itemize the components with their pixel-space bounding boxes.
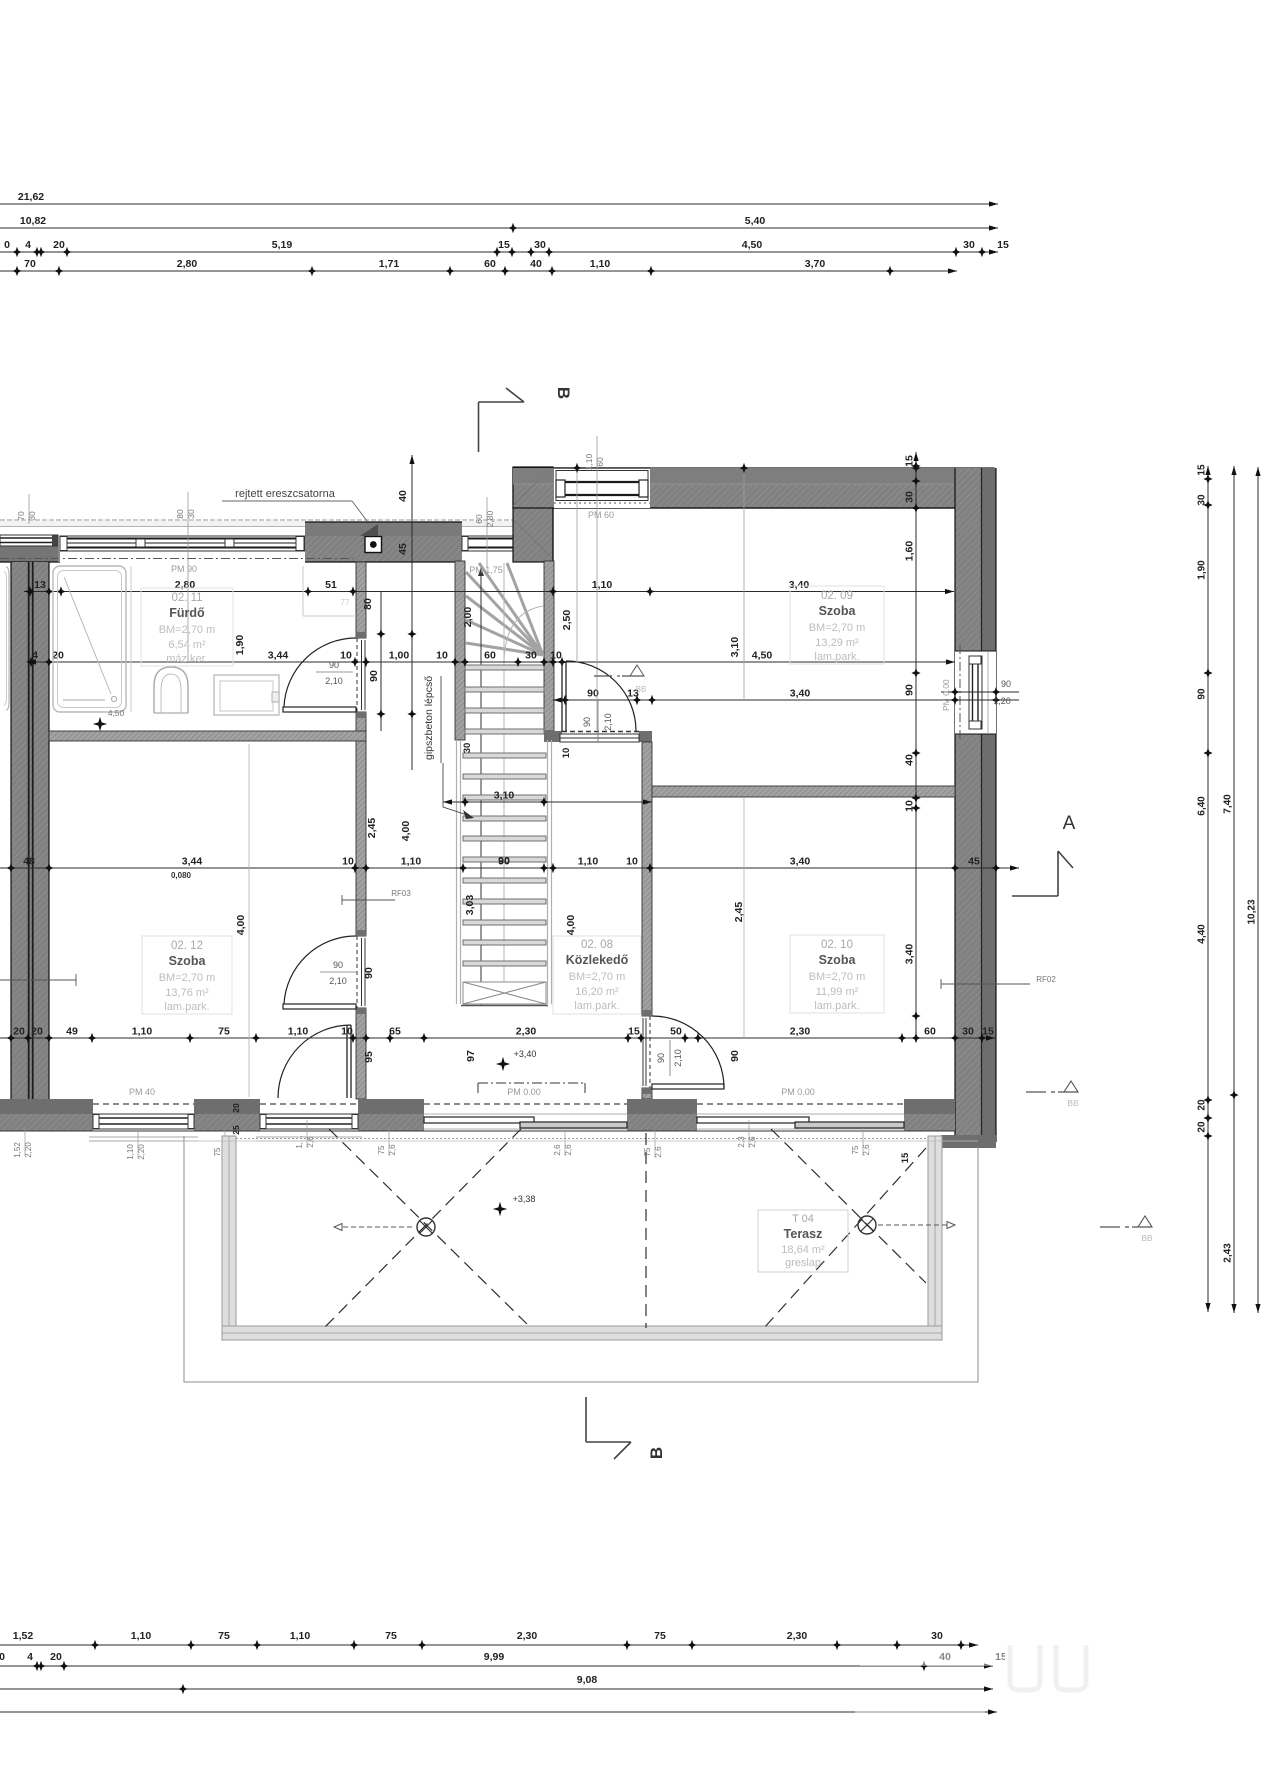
svg-text:10: 10 xyxy=(904,800,916,812)
svg-text:30: 30 xyxy=(963,239,975,251)
svg-text:20: 20 xyxy=(231,1103,241,1113)
svg-text:lam.park.: lam.park. xyxy=(814,1000,859,1012)
svg-text:4,50: 4,50 xyxy=(108,708,125,718)
svg-text:10: 10 xyxy=(626,856,638,868)
svg-text:15: 15 xyxy=(628,1026,640,1038)
svg-text:6,40: 6,40 xyxy=(1197,796,1208,816)
svg-text:3,40: 3,40 xyxy=(904,944,916,965)
svg-text:18,64 m²: 18,64 m² xyxy=(781,1244,825,1256)
svg-text:13,29 m²: 13,29 m² xyxy=(815,637,859,649)
svg-text:PM 0.00: PM 0.00 xyxy=(781,1087,815,1097)
svg-text:2,3: 2,3 xyxy=(737,1136,746,1148)
svg-text:1,10: 1,10 xyxy=(131,1630,152,1642)
svg-text:1,10: 1,10 xyxy=(578,856,599,868)
svg-text:16,20 m²: 16,20 m² xyxy=(575,986,619,998)
svg-text:T 04: T 04 xyxy=(792,1213,814,1225)
svg-text:20: 20 xyxy=(1197,1121,1208,1133)
svg-text:5,19: 5,19 xyxy=(272,239,293,251)
svg-text:25: 25 xyxy=(231,1125,241,1135)
svg-text:RF02: RF02 xyxy=(1036,975,1056,984)
svg-text:97: 97 xyxy=(465,1050,477,1062)
svg-text:15: 15 xyxy=(900,1152,911,1163)
svg-text:3,10: 3,10 xyxy=(729,637,741,658)
svg-text:1,00: 1,00 xyxy=(389,650,410,662)
svg-text:90: 90 xyxy=(904,684,916,696)
svg-text:B: B xyxy=(647,1447,666,1459)
svg-text:30: 30 xyxy=(931,1630,943,1642)
svg-text:1,52: 1,52 xyxy=(13,1630,34,1642)
svg-text:30: 30 xyxy=(962,1026,974,1038)
svg-text:4: 4 xyxy=(32,650,38,662)
svg-text:1,52: 1,52 xyxy=(13,1142,22,1158)
svg-text:2,10: 2,10 xyxy=(325,676,343,686)
svg-text:75: 75 xyxy=(385,1630,397,1642)
svg-text:75: 75 xyxy=(218,1026,230,1038)
svg-text:2,20: 2,20 xyxy=(137,1144,146,1160)
svg-text:1,10: 1,10 xyxy=(132,1026,153,1038)
svg-text:BM=2,70 m: BM=2,70 m xyxy=(159,972,216,984)
svg-text:3,40: 3,40 xyxy=(790,856,811,868)
svg-text:13,76 m²: 13,76 m² xyxy=(165,987,209,999)
svg-text:15: 15 xyxy=(997,239,1009,251)
svg-text:45: 45 xyxy=(968,856,980,868)
svg-text:30: 30 xyxy=(525,650,537,662)
svg-text:15: 15 xyxy=(982,1026,994,1038)
svg-text:0: 0 xyxy=(4,239,10,251)
svg-text:máz.ker.: máz.ker. xyxy=(166,653,208,665)
svg-text:2,50: 2,50 xyxy=(561,610,573,631)
svg-text:90: 90 xyxy=(329,660,339,670)
svg-text:10: 10 xyxy=(341,1026,353,1038)
svg-text:3,44: 3,44 xyxy=(268,650,289,662)
svg-text:1,71: 1,71 xyxy=(379,258,400,270)
svg-text:10: 10 xyxy=(342,856,354,868)
svg-text:30: 30 xyxy=(904,491,916,503)
svg-text:77: 77 xyxy=(341,598,350,607)
svg-text:60: 60 xyxy=(924,1026,936,1038)
svg-text:2,10: 2,10 xyxy=(603,713,613,731)
svg-text:2,80: 2,80 xyxy=(485,510,495,527)
svg-text:02. 10: 02. 10 xyxy=(821,939,853,951)
svg-text:1,10: 1,10 xyxy=(126,1144,135,1160)
svg-text:60: 60 xyxy=(484,258,496,270)
svg-text:4,00: 4,00 xyxy=(565,915,577,936)
svg-text:02. 11: 02. 11 xyxy=(171,592,202,604)
svg-text:90: 90 xyxy=(363,967,375,979)
svg-text:PM 0.00: PM 0.00 xyxy=(941,679,951,711)
svg-text:70: 70 xyxy=(16,511,26,521)
svg-text:2,80: 2,80 xyxy=(177,258,198,270)
svg-text:90: 90 xyxy=(333,960,343,970)
svg-text:+3,38: +3,38 xyxy=(513,1194,536,1204)
svg-text:4,40: 4,40 xyxy=(1197,924,1208,944)
svg-text:1,20: 1,20 xyxy=(993,696,1011,706)
svg-text:95: 95 xyxy=(363,1051,375,1063)
svg-text:75: 75 xyxy=(218,1630,230,1642)
svg-text:3,70: 3,70 xyxy=(805,258,826,270)
svg-text:BM=2,70 m: BM=2,70 m xyxy=(159,624,216,636)
svg-text:2,80: 2,80 xyxy=(175,579,196,591)
svg-text:5,40: 5,40 xyxy=(745,215,766,227)
svg-text:20: 20 xyxy=(50,1651,62,1663)
svg-text:60: 60 xyxy=(474,514,484,524)
svg-text:2,10: 2,10 xyxy=(673,1049,683,1067)
svg-text:10,23: 10,23 xyxy=(1247,899,1258,924)
svg-text:15: 15 xyxy=(1197,464,1208,476)
svg-text:1,...: 1,... xyxy=(295,1135,304,1148)
svg-text:BB: BB xyxy=(1141,1233,1153,1243)
svg-text:4: 4 xyxy=(25,239,31,251)
svg-text:75: 75 xyxy=(654,1630,666,1642)
svg-text:30: 30 xyxy=(27,511,37,521)
svg-text:20: 20 xyxy=(1197,1099,1208,1111)
svg-text:10: 10 xyxy=(550,650,562,662)
svg-text:60: 60 xyxy=(484,650,496,662)
svg-text:20: 20 xyxy=(53,239,65,251)
svg-text:PM 40: PM 40 xyxy=(129,1087,155,1097)
svg-text:1,10: 1,10 xyxy=(288,1026,309,1038)
svg-text:BM=2,70 m: BM=2,70 m xyxy=(809,622,866,634)
svg-text:4: 4 xyxy=(27,1651,33,1663)
svg-text:10: 10 xyxy=(340,650,352,662)
svg-text:15: 15 xyxy=(904,455,916,467)
svg-text:2,00: 2,00 xyxy=(462,607,474,628)
svg-text:90: 90 xyxy=(1001,679,1011,689)
svg-text:2,45: 2,45 xyxy=(366,818,378,839)
svg-text:4,00: 4,00 xyxy=(400,821,412,842)
svg-text:75: 75 xyxy=(377,1145,386,1154)
svg-text:0: 0 xyxy=(0,1651,5,1663)
svg-text:40: 40 xyxy=(904,754,916,766)
svg-text:10: 10 xyxy=(436,650,448,662)
svg-text:BM=2,70 m: BM=2,70 m xyxy=(809,971,866,983)
svg-text:Szoba: Szoba xyxy=(819,604,857,618)
svg-text:20: 20 xyxy=(31,1026,43,1038)
svg-text:1,10: 1,10 xyxy=(290,1630,311,1642)
svg-text:90: 90 xyxy=(1197,688,1208,700)
svg-text:80: 80 xyxy=(175,509,185,519)
svg-text:2,30: 2,30 xyxy=(787,1630,808,1642)
svg-text:90: 90 xyxy=(582,717,592,727)
svg-text:3,44: 3,44 xyxy=(182,856,203,868)
svg-text:PM 60: PM 60 xyxy=(588,510,614,520)
svg-text:60: 60 xyxy=(595,457,605,467)
svg-text:BB: BB xyxy=(1067,1098,1079,1108)
svg-text:Szoba: Szoba xyxy=(819,953,857,967)
svg-text:1,60: 1,60 xyxy=(904,541,916,562)
svg-text:40: 40 xyxy=(397,490,409,502)
svg-text:1,10: 1,10 xyxy=(592,579,613,591)
svg-text:3,03: 3,03 xyxy=(464,895,476,916)
svg-text:02. 08: 02. 08 xyxy=(581,939,613,951)
svg-text:lam.park.: lam.park. xyxy=(814,651,859,663)
svg-text:0,080: 0,080 xyxy=(171,871,192,880)
svg-text:2,45: 2,45 xyxy=(733,902,745,923)
svg-text:1,10: 1,10 xyxy=(584,453,594,470)
svg-text:1,90: 1,90 xyxy=(1197,560,1208,580)
svg-text:90: 90 xyxy=(498,855,510,867)
svg-text:1,10: 1,10 xyxy=(590,258,611,270)
svg-text:3,40: 3,40 xyxy=(789,579,810,591)
svg-text:2,6: 2,6 xyxy=(553,1144,562,1156)
svg-text:51: 51 xyxy=(325,579,337,591)
svg-text:02. 12: 02. 12 xyxy=(171,940,203,952)
svg-text:lam.park.: lam.park. xyxy=(164,1001,209,1013)
svg-text:6,54 m²: 6,54 m² xyxy=(168,639,206,651)
svg-text:9,99: 9,99 xyxy=(484,1651,505,1663)
svg-text:1,10: 1,10 xyxy=(401,856,422,868)
svg-text:RF03: RF03 xyxy=(391,889,411,898)
svg-text:30: 30 xyxy=(462,743,473,754)
svg-text:Fürdő: Fürdő xyxy=(169,606,205,620)
svg-text:PM 90: PM 90 xyxy=(171,564,197,574)
svg-text:BM=2,70 m: BM=2,70 m xyxy=(569,971,626,983)
svg-text:13: 13 xyxy=(34,579,46,591)
svg-text:4,50: 4,50 xyxy=(752,650,773,662)
svg-text:10: 10 xyxy=(561,748,572,759)
svg-text:lam.park.: lam.park. xyxy=(574,1000,619,1012)
svg-text:50: 50 xyxy=(670,1026,682,1038)
svg-text:49: 49 xyxy=(66,1026,78,1038)
svg-text:02. 09: 02. 09 xyxy=(821,590,853,602)
svg-text:+3,40: +3,40 xyxy=(514,1049,537,1059)
svg-text:48: 48 xyxy=(23,856,35,868)
svg-text:75: 75 xyxy=(643,1147,652,1156)
svg-text:BB: BB xyxy=(636,685,647,694)
svg-text:30: 30 xyxy=(1197,494,1208,506)
svg-text:30: 30 xyxy=(186,509,196,519)
svg-text:70: 70 xyxy=(24,258,36,270)
svg-text:11,99 m²: 11,99 m² xyxy=(816,986,859,998)
svg-text:15: 15 xyxy=(498,239,510,251)
svg-text:65: 65 xyxy=(389,1026,401,1038)
svg-text:2,30: 2,30 xyxy=(516,1026,537,1038)
svg-text:3,40: 3,40 xyxy=(790,688,811,700)
svg-text:2,10: 2,10 xyxy=(329,976,347,986)
svg-text:75: 75 xyxy=(851,1145,860,1154)
svg-text:45: 45 xyxy=(397,543,409,555)
svg-text:3,10: 3,10 xyxy=(494,790,515,802)
svg-text:A: A xyxy=(1063,813,1076,834)
svg-text:20: 20 xyxy=(52,650,64,662)
svg-text:9,08: 9,08 xyxy=(577,1674,598,1686)
svg-text:80: 80 xyxy=(362,598,374,610)
svg-text:Terasz: Terasz xyxy=(784,1227,823,1241)
svg-text:21,62: 21,62 xyxy=(18,191,44,203)
svg-text:30: 30 xyxy=(534,239,546,251)
svg-text:4,50: 4,50 xyxy=(742,239,763,251)
svg-text:7,40: 7,40 xyxy=(1223,794,1234,814)
svg-text:gipszbeton lépcső: gipszbeton lépcső xyxy=(423,676,435,760)
svg-text:4,00: 4,00 xyxy=(235,915,247,936)
svg-text:75: 75 xyxy=(213,1147,222,1156)
svg-text:greslap: greslap xyxy=(785,1257,821,1269)
svg-text:90: 90 xyxy=(368,670,380,682)
svg-text:2,30: 2,30 xyxy=(517,1630,538,1642)
svg-text:B: B xyxy=(554,387,573,399)
svg-text:40: 40 xyxy=(530,258,542,270)
svg-text:Szoba: Szoba xyxy=(169,954,207,968)
svg-text:PM 0.00: PM 0.00 xyxy=(507,1087,541,1097)
svg-text:20: 20 xyxy=(13,1026,25,1038)
svg-text:2,30: 2,30 xyxy=(790,1026,811,1038)
svg-text:rejtett ereszcsatorna: rejtett ereszcsatorna xyxy=(235,488,336,500)
svg-text:2,43: 2,43 xyxy=(1223,1243,1234,1263)
svg-text:Közlekedő: Közlekedő xyxy=(566,953,629,967)
svg-text:PM 1,75: PM 1,75 xyxy=(469,565,503,575)
svg-text:1,90: 1,90 xyxy=(234,635,246,656)
svg-text:10,82: 10,82 xyxy=(20,215,46,227)
svg-text:90: 90 xyxy=(656,1053,666,1063)
svg-text:90: 90 xyxy=(729,1050,741,1062)
